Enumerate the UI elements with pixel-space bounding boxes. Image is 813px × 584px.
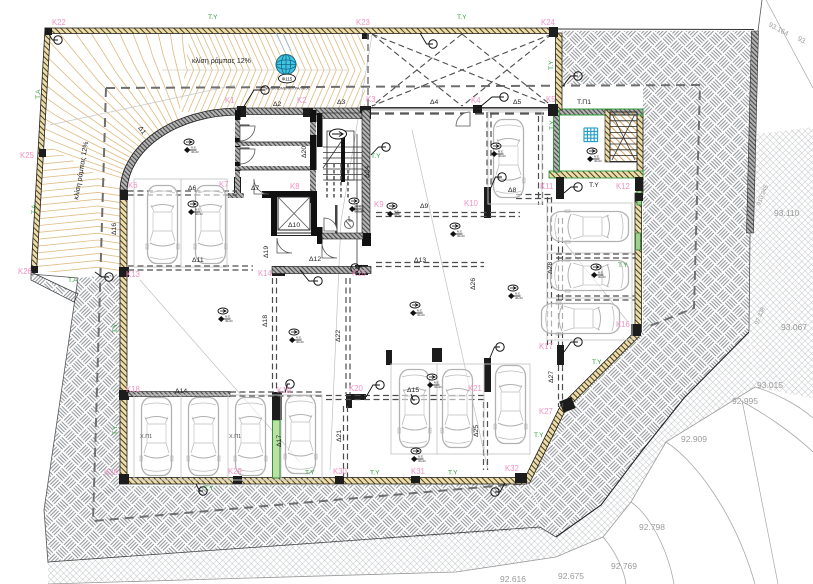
svg-text:93.067: 93.067	[781, 322, 807, 332]
svg-text:K15: K15	[352, 269, 367, 278]
svg-text:T.A: T.A	[31, 204, 38, 214]
svg-text:Δ12: Δ12	[309, 256, 321, 263]
svg-text:κλίση ράμπας 12%: κλίση ράμπας 12%	[192, 57, 251, 65]
svg-text:Φ115: Φ115	[282, 77, 293, 82]
svg-text:T.Y: T.Y	[448, 470, 458, 477]
svg-text:K7: K7	[219, 180, 229, 189]
svg-text:92.995: 92.995	[732, 396, 758, 406]
svg-text:Δ24: Δ24	[364, 166, 371, 178]
svg-text:92.909: 92.909	[681, 434, 707, 444]
svg-text:T.Y: T.Y	[112, 323, 119, 333]
svg-text:92.769: 92.769	[611, 561, 637, 571]
svg-text:Δ3: Δ3	[337, 99, 346, 106]
svg-text:T.A: T.A	[68, 277, 78, 284]
svg-text:K19: K19	[277, 386, 291, 395]
svg-text:Δ27: Δ27	[548, 371, 555, 383]
svg-text:Δ19: Δ19	[263, 246, 270, 258]
svg-text:K3: K3	[366, 95, 376, 104]
svg-text:ΜΗΧΑΝΟΜΕΝΗ ΚΡΑΛΑΚΑ: ΜΗΧΑΝΟΜΕΝΗ ΚΡΑΛΑΚΑ	[265, 87, 309, 91]
svg-text:93.110: 93.110	[774, 208, 800, 218]
svg-text:Δ10: Δ10	[288, 222, 300, 229]
svg-text:K10: K10	[464, 199, 479, 208]
svg-text:K25: K25	[20, 151, 35, 160]
svg-text:T.Y: T.Y	[548, 60, 555, 70]
svg-text:K30: K30	[333, 467, 348, 476]
svg-text:K9: K9	[374, 200, 384, 209]
svg-text:K13: K13	[126, 270, 140, 279]
svg-text:Δ26: Δ26	[470, 278, 477, 290]
svg-text:K14: K14	[258, 269, 273, 278]
svg-text:T.Y: T.Y	[204, 485, 214, 492]
svg-text:K16: K16	[616, 320, 630, 329]
svg-text:Δ2: Δ2	[273, 101, 282, 108]
svg-text:T.Y: T.Y	[112, 425, 119, 435]
svg-text:K21: K21	[468, 384, 482, 393]
svg-text:T.Y: T.Y	[208, 14, 218, 21]
svg-text:Δ18: Δ18	[262, 315, 269, 327]
svg-text:K18: K18	[126, 385, 140, 394]
svg-text:K1: K1	[225, 96, 235, 105]
svg-text:T.Y: T.Y	[589, 182, 599, 189]
svg-text:Δ8: Δ8	[508, 187, 517, 194]
svg-text:K31: K31	[411, 467, 425, 476]
svg-text:Δ17: Δ17	[276, 435, 283, 447]
svg-text:K32: K32	[505, 464, 519, 473]
svg-text:K22: K22	[52, 18, 66, 27]
svg-text:Δ15: Δ15	[407, 387, 419, 394]
svg-text:T.Y: T.Y	[371, 153, 381, 160]
svg-text:Δ9: Δ9	[420, 203, 429, 210]
svg-text:Δ6: Δ6	[188, 185, 197, 192]
svg-text:Χ.Π1: Χ.Π1	[140, 434, 152, 440]
svg-text:Δ13: Δ13	[414, 257, 426, 264]
svg-text:Δ7: Δ7	[251, 185, 260, 192]
svg-text:T.A: T.A	[35, 89, 42, 99]
svg-text:92.798: 92.798	[639, 522, 665, 532]
svg-text:K27: K27	[539, 407, 553, 416]
svg-text:T.Y: T.Y	[534, 432, 544, 439]
svg-text:Δ20: Δ20	[301, 146, 308, 158]
svg-text:K17: K17	[539, 342, 553, 351]
svg-text:Δ5: Δ5	[513, 99, 522, 106]
svg-text:T.Y: T.Y	[457, 14, 467, 21]
svg-text:K4: K4	[471, 96, 481, 105]
svg-text:K29: K29	[228, 467, 242, 476]
svg-text:K8: K8	[290, 182, 300, 191]
svg-text:K6: K6	[128, 181, 138, 190]
svg-text:Δ16: Δ16	[111, 223, 118, 235]
svg-text:K5: K5	[546, 95, 556, 104]
svg-text:Δ11: Δ11	[192, 257, 204, 264]
svg-text:Δ28: Δ28	[547, 262, 554, 274]
svg-text:T.Y: T.Y	[618, 262, 628, 269]
svg-text:T.Y: T.Y	[549, 120, 556, 130]
svg-text:Δ25: Δ25	[473, 425, 480, 437]
svg-text:K24: K24	[541, 18, 556, 27]
svg-text:K20: K20	[349, 384, 364, 393]
svg-text:K28: K28	[104, 468, 118, 477]
svg-text:K26: K26	[18, 267, 32, 276]
svg-text:Δ4: Δ4	[430, 99, 439, 106]
svg-text:K12: K12	[616, 182, 630, 191]
svg-text:Δ21: Δ21	[336, 430, 343, 442]
svg-text:92.675: 92.675	[558, 571, 584, 581]
svg-text:K2: K2	[297, 96, 307, 105]
svg-text:T.Y: T.Y	[305, 470, 315, 477]
svg-text:Δ22: Δ22	[335, 330, 342, 342]
svg-text:Δ14: Δ14	[175, 388, 187, 395]
svg-text:Χ.Π1: Χ.Π1	[229, 434, 241, 440]
svg-text:K23: K23	[356, 18, 370, 27]
svg-text:93.015: 93.015	[757, 380, 783, 390]
svg-text:K11: K11	[540, 182, 553, 191]
svg-text:T.Y: T.Y	[592, 359, 602, 366]
svg-text:T.Π1: T.Π1	[577, 99, 591, 106]
svg-text:92.616: 92.616	[500, 574, 526, 584]
svg-text:T.Y: T.Y	[370, 470, 380, 477]
